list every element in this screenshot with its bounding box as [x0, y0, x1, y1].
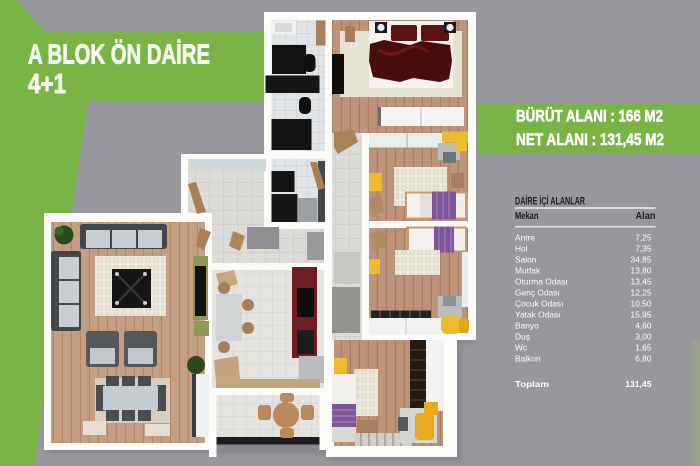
svg-text:1,65: 1,65	[635, 343, 652, 353]
svg-text:Duş: Duş	[515, 332, 530, 342]
svg-text:Hol: Hol	[515, 244, 528, 254]
svg-text:Banyo: Banyo	[515, 321, 539, 331]
svg-text:BÜRÜT ALANI : 166 M2: BÜRÜT ALANI : 166 M2	[516, 107, 663, 126]
svg-text:Mekan: Mekan	[515, 211, 539, 222]
svg-text:NET ALANI : 131,45 M2: NET ALANI : 131,45 M2	[516, 130, 664, 149]
svg-text:12,25: 12,25	[631, 288, 652, 298]
svg-text:A BLOK ÖN DAİRE: A BLOK ÖN DAİRE	[28, 39, 210, 70]
svg-text:34,85: 34,85	[631, 255, 652, 265]
svg-text:Antre: Antre	[515, 233, 535, 243]
svg-text:4+1: 4+1	[28, 68, 66, 99]
svg-text:Salon: Salon	[515, 255, 537, 265]
svg-text:Mutfak: Mutfak	[515, 266, 541, 276]
svg-text:DAİRE İÇİ ALANLAR: DAİRE İÇİ ALANLAR	[515, 195, 585, 208]
svg-text:Wc: Wc	[515, 343, 527, 353]
svg-text:10,50: 10,50	[631, 299, 652, 309]
svg-text:Toplam: Toplam	[515, 379, 549, 389]
svg-text:Oturma Odası: Oturma Odası	[515, 277, 568, 287]
svg-text:3,00: 3,00	[635, 332, 652, 342]
svg-text:Alan: Alan	[636, 211, 656, 222]
svg-text:Genç Odası: Genç Odası	[515, 288, 560, 298]
svg-text:4,60: 4,60	[635, 321, 652, 331]
svg-text:13,45: 13,45	[631, 277, 652, 287]
svg-text:13,80: 13,80	[631, 266, 652, 276]
svg-text:Balkon: Balkon	[515, 354, 541, 364]
svg-text:131,45: 131,45	[625, 379, 652, 389]
svg-text:Çocuk Odası: Çocuk Odası	[515, 299, 563, 309]
svg-text:Yatak Odası: Yatak Odası	[515, 310, 560, 320]
svg-text:7,25: 7,25	[635, 233, 652, 243]
svg-text:6,80: 6,80	[635, 354, 652, 364]
svg-text:7,35: 7,35	[635, 244, 652, 254]
svg-text:15,95: 15,95	[631, 310, 652, 320]
